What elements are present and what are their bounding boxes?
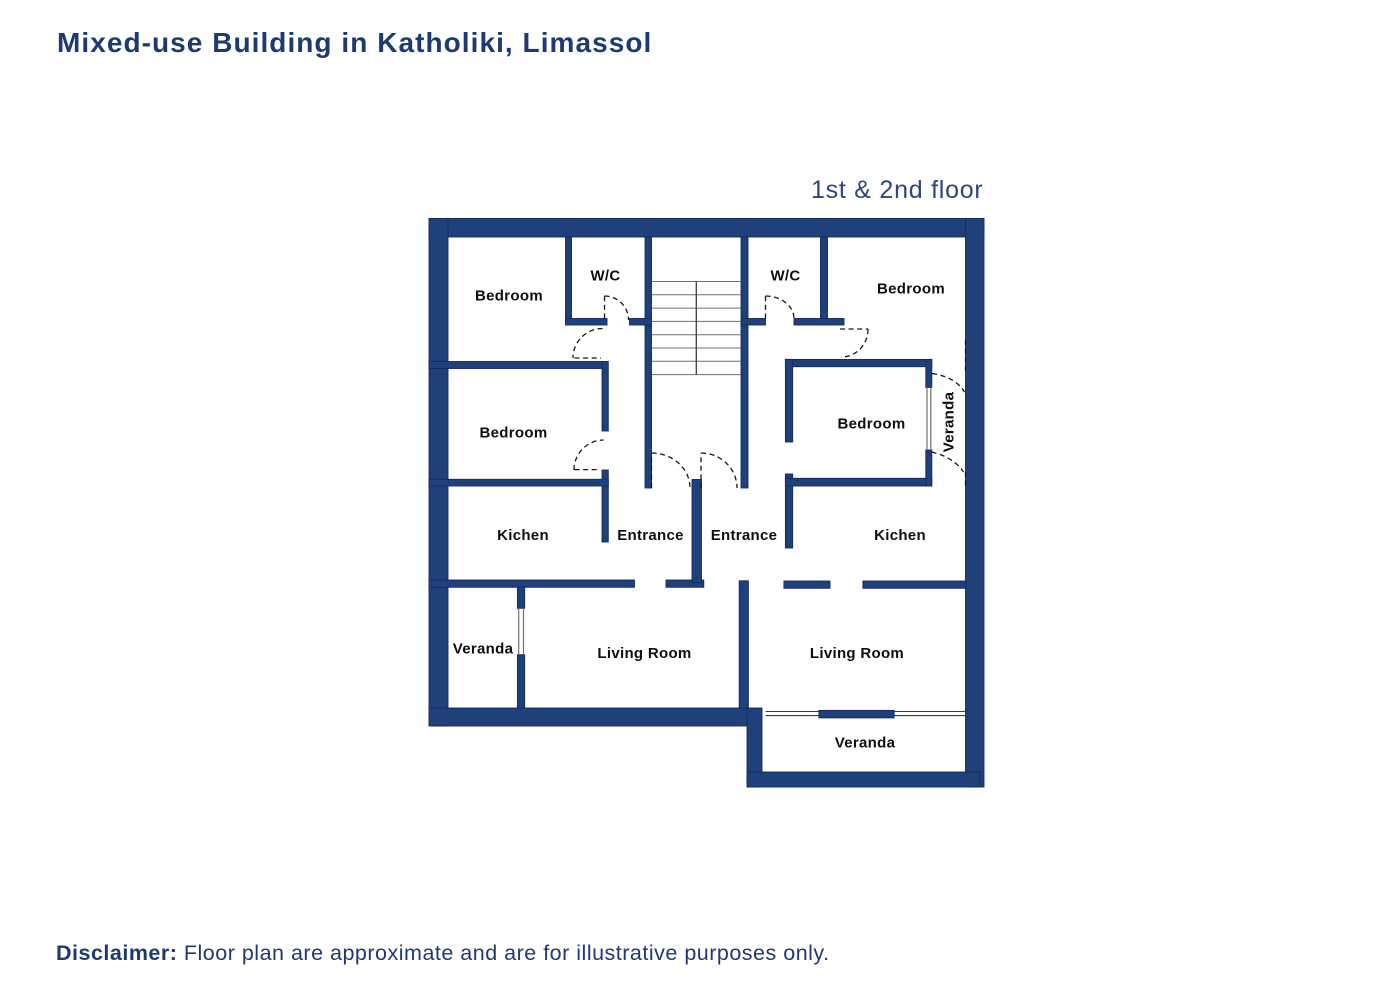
svg-text:Bedroom: Bedroom bbox=[480, 425, 548, 442]
svg-text:W/C: W/C bbox=[590, 268, 620, 285]
svg-text:Living Room: Living Room bbox=[810, 645, 904, 662]
svg-text:Veranda: Veranda bbox=[941, 391, 958, 452]
svg-text:Veranda: Veranda bbox=[835, 735, 896, 752]
svg-text:Kichen: Kichen bbox=[497, 527, 549, 544]
svg-text:Bedroom: Bedroom bbox=[475, 288, 543, 305]
svg-text:1st & 2nd floor: 1st & 2nd floor bbox=[811, 176, 983, 204]
svg-text:Entrance: Entrance bbox=[617, 527, 684, 544]
svg-text:Disclaimer: Floor plan are app: Disclaimer: Floor plan are approximate a… bbox=[56, 941, 830, 965]
svg-text:Living Room: Living Room bbox=[597, 645, 691, 662]
svg-text:Entrance: Entrance bbox=[711, 527, 778, 544]
svg-text:Mixed-use Building in Katholik: Mixed-use Building in Katholiki, Limasso… bbox=[57, 27, 652, 58]
svg-text:W/C: W/C bbox=[770, 268, 800, 285]
svg-text:Kichen: Kichen bbox=[874, 527, 926, 544]
svg-text:Bedroom: Bedroom bbox=[838, 416, 906, 433]
svg-text:Bedroom: Bedroom bbox=[877, 281, 945, 298]
svg-text:Veranda: Veranda bbox=[453, 641, 514, 658]
